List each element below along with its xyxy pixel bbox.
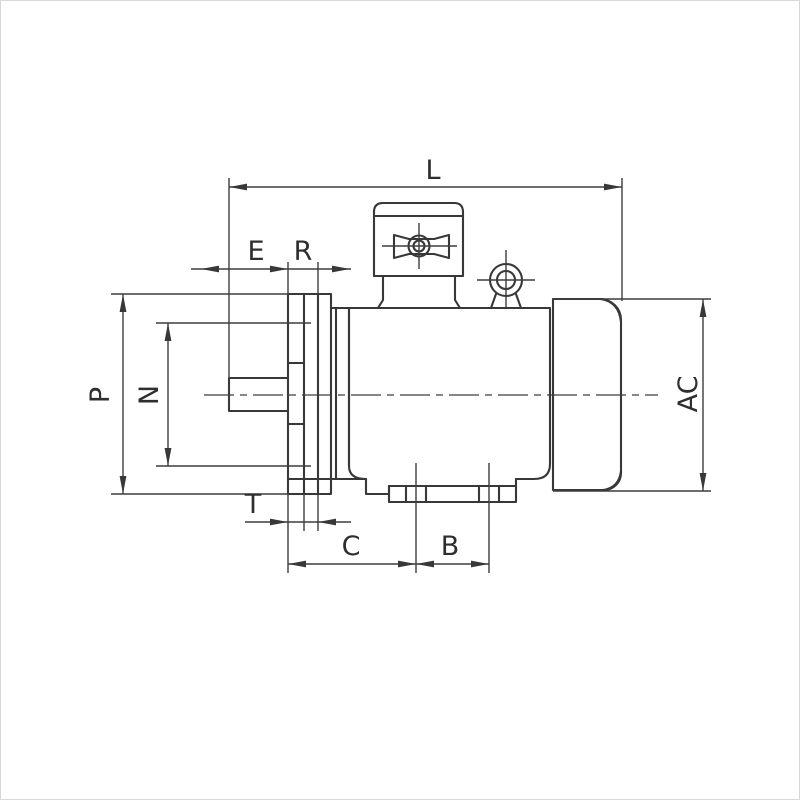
dim-label-R: R (294, 236, 313, 267)
dim-label-B: B (441, 531, 460, 562)
dim-label-T: T (244, 489, 262, 520)
mounting-foot (389, 479, 516, 502)
dim-label-AC: AC (673, 376, 704, 413)
bearing-bracket (288, 308, 366, 479)
dimension-P: P (85, 294, 288, 494)
cable-gland (382, 223, 457, 269)
dim-label-N: N (134, 385, 165, 405)
dim-label-P: P (85, 387, 116, 403)
dim-label-L: L (425, 155, 440, 186)
drawing-page: L E R P N T C (0, 0, 800, 800)
dim-label-C: C (342, 531, 361, 562)
lifting-eye-bolt (477, 250, 535, 309)
dim-label-E: E (247, 236, 264, 267)
mounting-flange (288, 294, 331, 494)
motor-body (331, 308, 550, 494)
technical-drawing: L E R P N T C (1, 1, 799, 799)
